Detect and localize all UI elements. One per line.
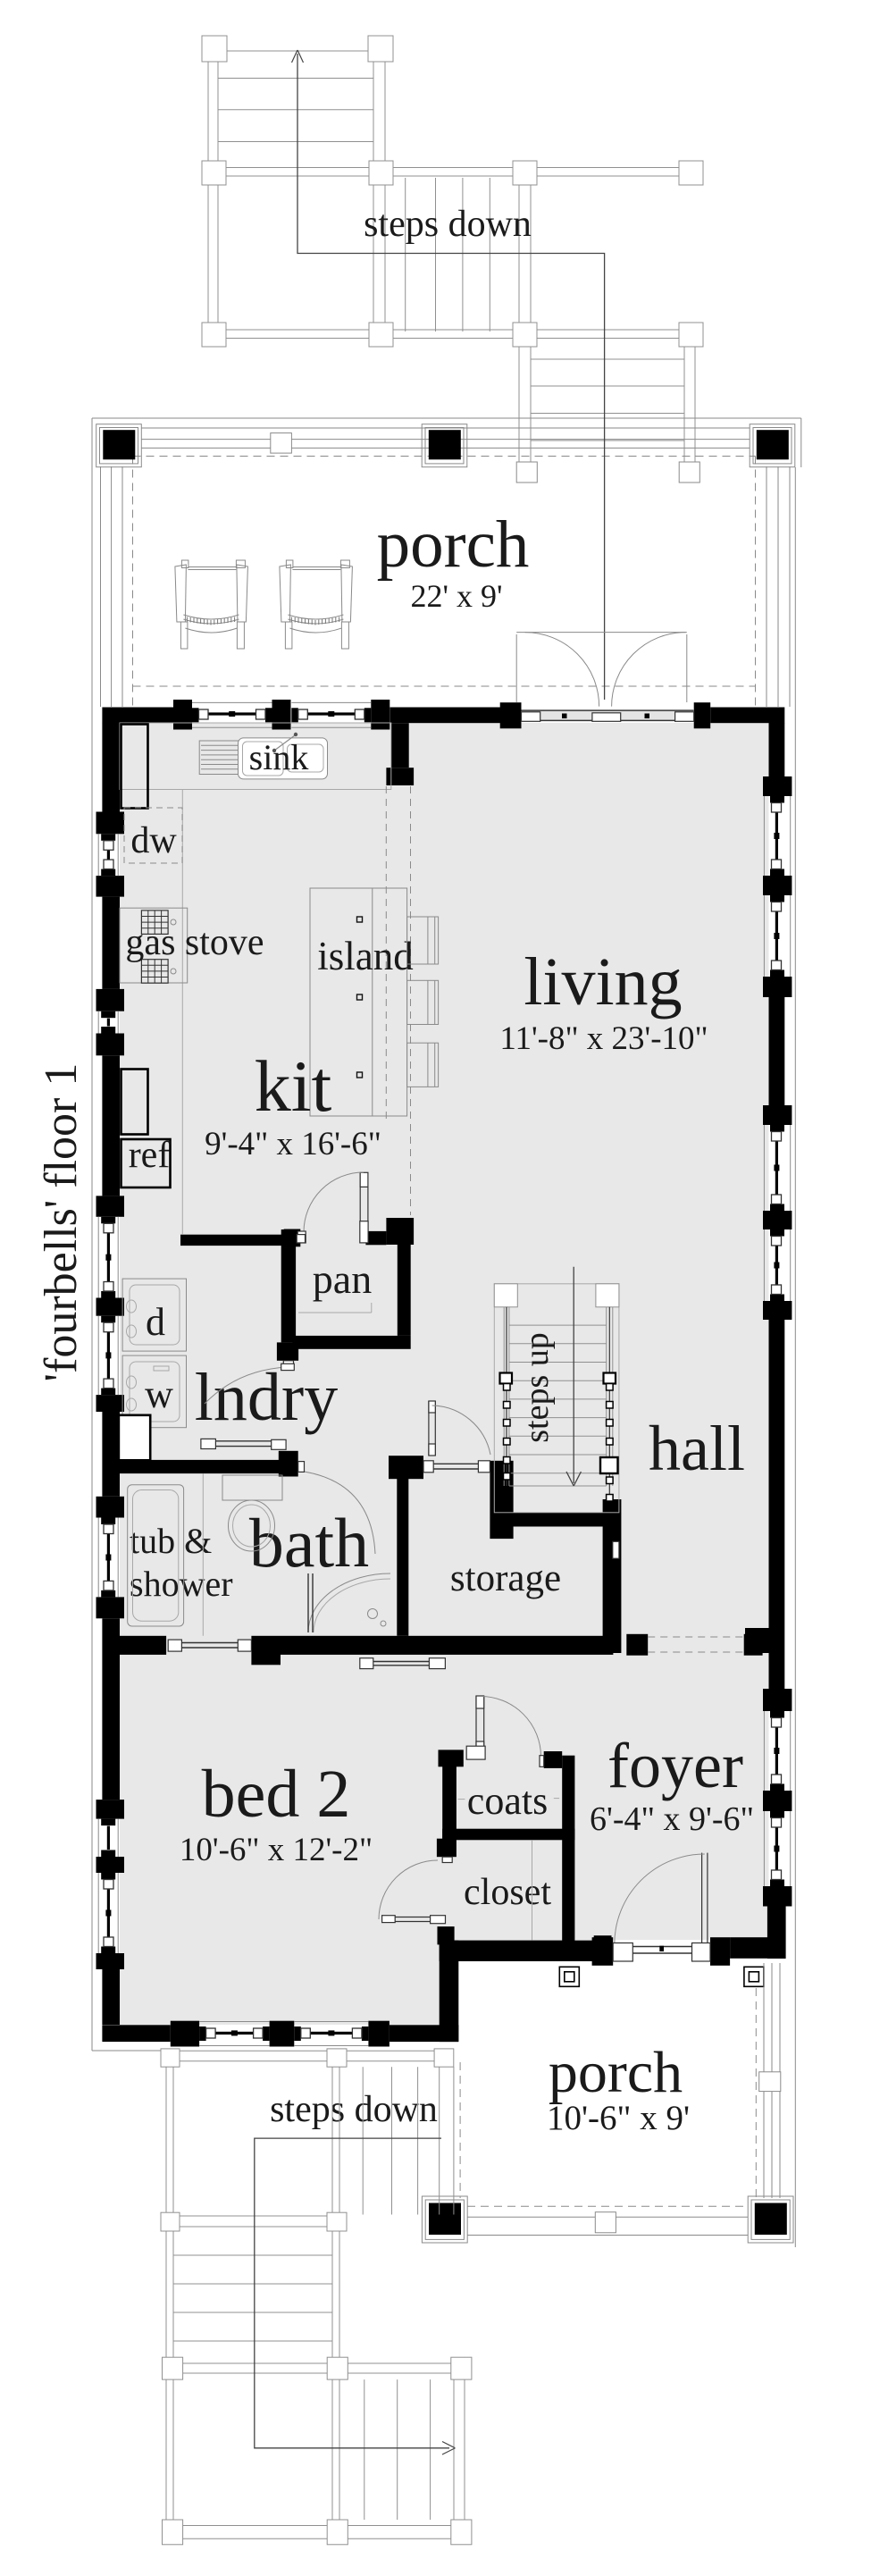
svg-text:coats: coats [467,1779,548,1823]
svg-text:ref: ref [129,1135,171,1176]
svg-text:steps up: steps up [518,1332,556,1443]
svg-text:bed 2: bed 2 [202,1757,351,1832]
svg-text:living: living [524,944,682,1019]
svg-text:storage: storage [450,1557,561,1599]
svg-text:10'-6" x 9': 10'-6" x 9' [547,2099,690,2137]
svg-text:steps down: steps down [364,204,532,245]
svg-text:kit: kit [255,1045,332,1127]
svg-text:pan: pan [313,1256,372,1302]
svg-text:tub &: tub & [130,1521,212,1561]
svg-text:9'-4" x 16'-6": 9'-4" x 16'-6" [205,1126,381,1162]
svg-text:dw: dw [130,820,177,861]
svg-text:shower: shower [130,1564,233,1604]
svg-text:porch: porch [549,2040,683,2105]
svg-text:10'-6" x 12'-2": 10'-6" x 12'-2" [180,1832,373,1868]
svg-text:'fourbells' floor 1: 'fourbells' floor 1 [36,1063,87,1382]
svg-text:bath: bath [249,1504,369,1582]
svg-text:island: island [317,934,414,978]
svg-text:w: w [145,1372,173,1416]
svg-text:22' x 9': 22' x 9' [411,578,503,614]
svg-text:foyer: foyer [607,1730,743,1801]
svg-text:d: d [146,1300,165,1344]
svg-text:sink: sink [249,737,309,777]
svg-text:steps down: steps down [270,2089,438,2130]
svg-text:gas stove: gas stove [125,922,264,963]
svg-text:porch: porch [377,508,530,582]
svg-text:closet: closet [464,1872,551,1913]
svg-text:hall: hall [649,1413,745,1484]
svg-text:lndry: lndry [195,1360,338,1435]
svg-text:6'-4" x 9'-6": 6'-4" x 9'-6" [590,1800,754,1838]
svg-text:11'-8" x 23'-10": 11'-8" x 23'-10" [499,1020,708,1057]
